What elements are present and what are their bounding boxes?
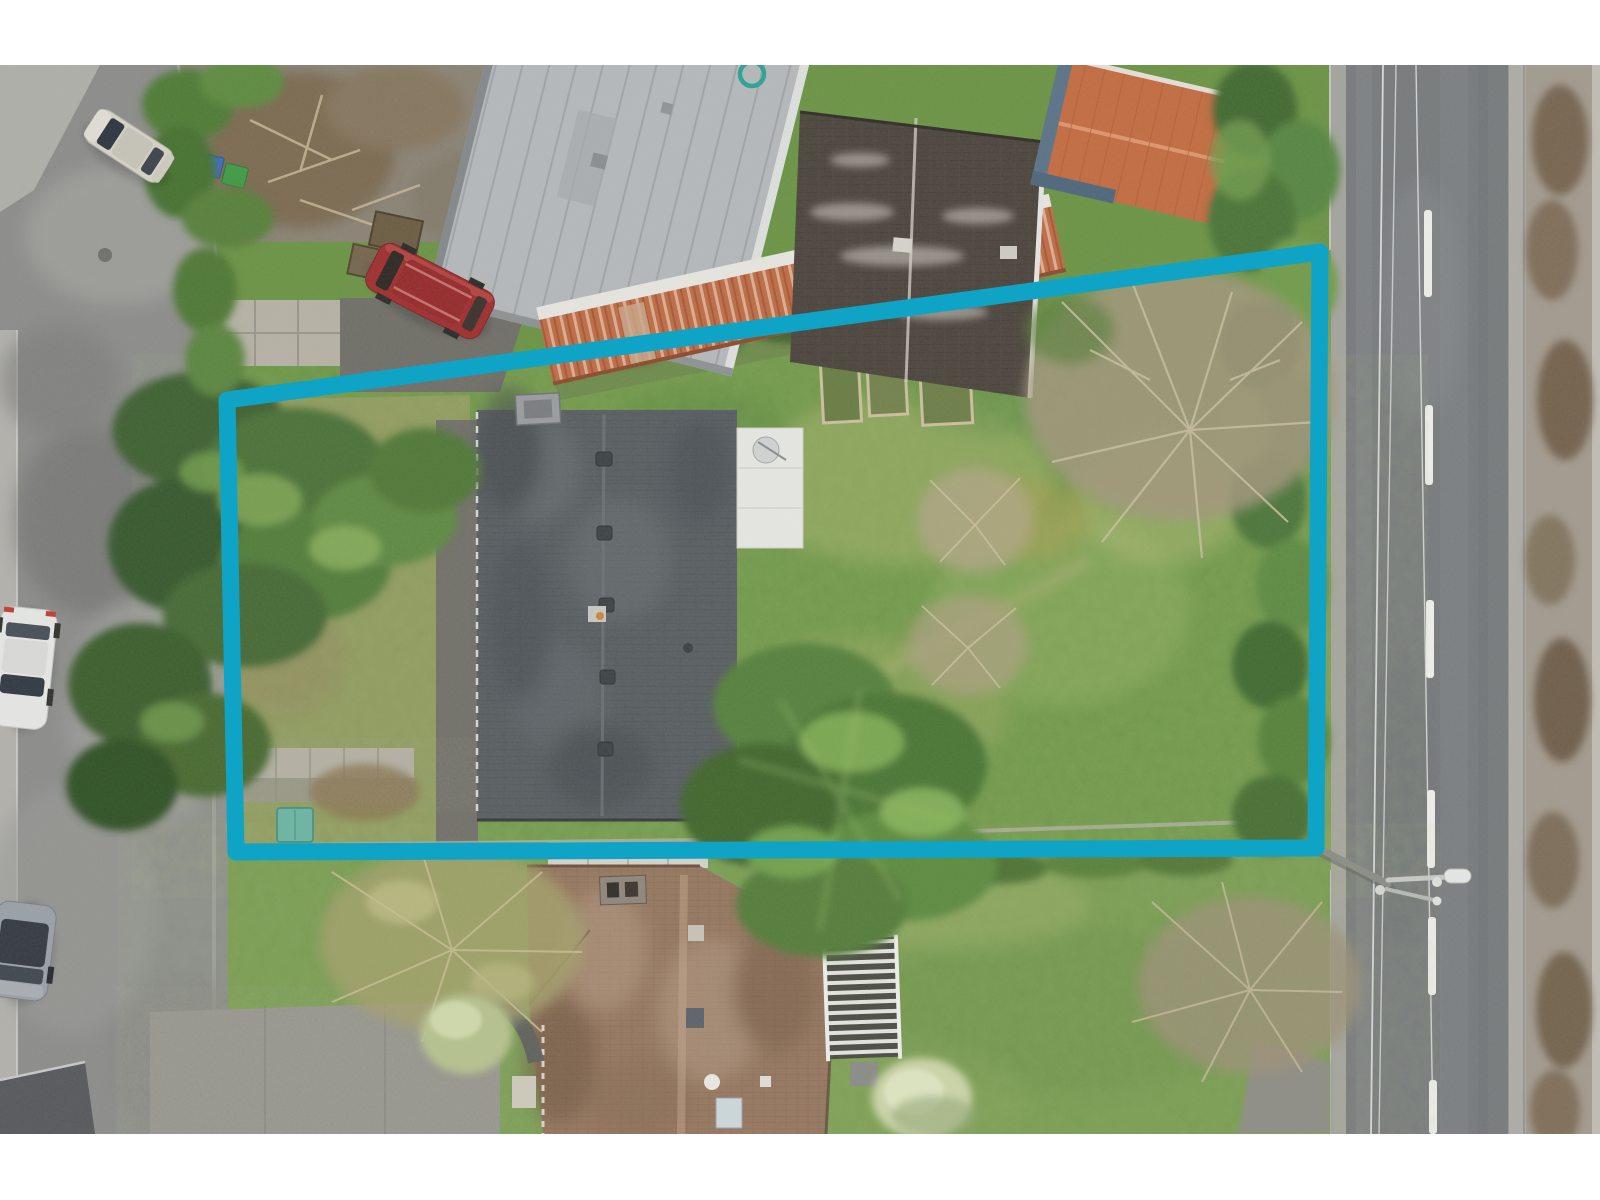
aerial-photo (0, 65, 1600, 1134)
screenshot-canvas (0, 0, 1600, 1200)
aerial-scene (0, 65, 1600, 1134)
letterbox-top (0, 0, 1600, 65)
letterbox-bottom (0, 1134, 1600, 1200)
